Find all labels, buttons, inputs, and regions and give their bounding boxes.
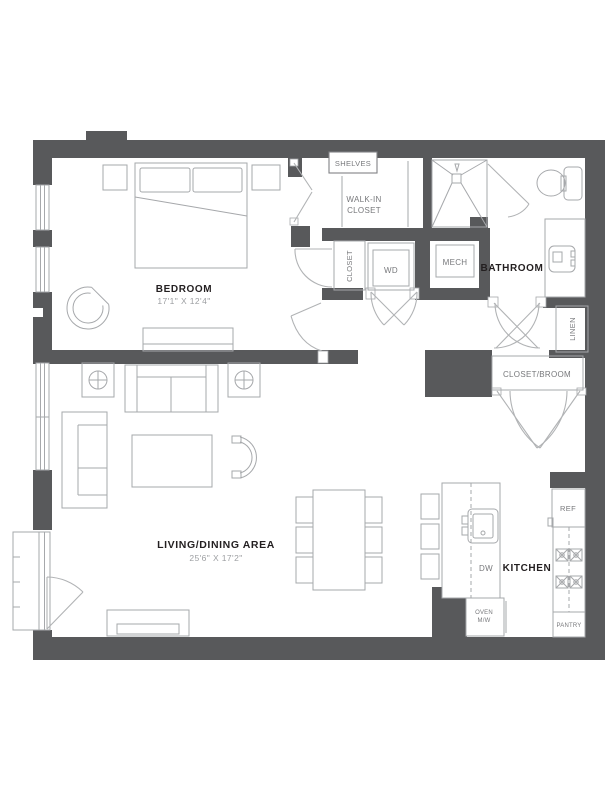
dining-table-set bbox=[296, 490, 382, 590]
bedroom-label: BEDROOM bbox=[156, 284, 212, 295]
dining-chair bbox=[365, 497, 382, 523]
left-wall-segment bbox=[33, 470, 52, 530]
right-wall bbox=[585, 140, 605, 660]
dining-chair bbox=[365, 557, 382, 583]
loveseat bbox=[62, 412, 107, 508]
oven-microwave-unit bbox=[466, 598, 506, 636]
left-wall-segment bbox=[33, 230, 52, 247]
bathroom-double-doors bbox=[494, 303, 540, 348]
oven-mw-label-line1: OVEN bbox=[475, 610, 493, 616]
accent-chair bbox=[232, 436, 256, 478]
shower-corner-wall bbox=[470, 217, 488, 240]
top-wall-pilaster bbox=[86, 131, 127, 141]
windows bbox=[13, 185, 50, 630]
window bbox=[36, 185, 49, 230]
bathroom-label: BATHROOM bbox=[481, 263, 544, 274]
dresser bbox=[143, 328, 233, 351]
shower-door bbox=[488, 164, 529, 217]
linen-label: LINEN bbox=[568, 317, 577, 341]
left-wall-notch bbox=[33, 308, 43, 317]
linen-bottom-wall bbox=[549, 350, 588, 358]
burner bbox=[556, 549, 568, 561]
dining-chair bbox=[296, 527, 313, 553]
hall-closet-wall bbox=[425, 350, 492, 397]
walkin-closet-label-line2: CLOSET bbox=[347, 206, 381, 215]
living-furniture bbox=[62, 363, 382, 636]
mech-label: MECH bbox=[443, 258, 468, 267]
kitchen-top-stub-wall bbox=[550, 472, 585, 488]
closet-broom-double-doors bbox=[497, 391, 580, 448]
walkin-shower-divider-wall bbox=[423, 158, 432, 228]
burner bbox=[570, 549, 582, 561]
shelves-label: SHELVES bbox=[335, 159, 371, 168]
dining-chair bbox=[296, 497, 313, 523]
sofa bbox=[125, 365, 218, 412]
bedroom-door bbox=[291, 303, 322, 351]
closet-broom-label: CLOSET/BROOM bbox=[503, 370, 571, 379]
window bbox=[36, 247, 49, 292]
kitchen-island bbox=[442, 483, 500, 598]
burner bbox=[570, 576, 582, 588]
closet-label: CLOSET bbox=[345, 250, 354, 282]
dining-chair bbox=[365, 527, 382, 553]
dining-chair bbox=[296, 557, 313, 583]
floorplan-page: BEDROOM 17'1" X 12'4" LIVING/DINING AREA… bbox=[0, 0, 612, 792]
closet-left-wall bbox=[291, 226, 310, 247]
range-counter bbox=[553, 527, 585, 612]
left-wall-segment bbox=[33, 630, 52, 640]
living-dining-dimensions: 25'6" X 17'2" bbox=[189, 553, 242, 563]
closet-row-top-wall bbox=[322, 228, 490, 241]
pantry-label: PANTRY bbox=[557, 623, 582, 629]
armchair bbox=[67, 287, 109, 329]
side-table bbox=[82, 363, 114, 397]
toilet bbox=[537, 167, 582, 200]
left-wall-segment bbox=[33, 292, 52, 364]
left-wall-segment bbox=[33, 140, 52, 185]
dishwasher-label: DW bbox=[479, 564, 493, 573]
stool bbox=[421, 494, 439, 519]
living-dining-label: LIVING/DINING AREA bbox=[157, 539, 275, 551]
dining-table bbox=[313, 490, 365, 590]
stool bbox=[421, 524, 439, 549]
bedroom-living-wall bbox=[52, 350, 358, 364]
shower bbox=[432, 160, 487, 227]
oven-mw-label-line2: M/W bbox=[478, 618, 491, 624]
bedroom-dimensions: 17'1" X 12'4" bbox=[157, 296, 210, 306]
bottom-wall bbox=[33, 637, 605, 660]
burner bbox=[556, 576, 568, 588]
floorplan-drawing: BEDROOM 17'1" X 12'4" LIVING/DINING AREA… bbox=[0, 0, 612, 792]
stool bbox=[421, 554, 439, 579]
media-console bbox=[107, 610, 189, 636]
coffee-table bbox=[132, 435, 212, 487]
nightstand bbox=[103, 165, 127, 190]
side-table bbox=[228, 363, 260, 397]
walkin-closet-label-line1: WALK-IN bbox=[346, 195, 381, 204]
bay-window bbox=[13, 532, 50, 630]
top-wall bbox=[33, 140, 585, 158]
nightstand bbox=[252, 165, 280, 190]
balcony-door bbox=[47, 577, 83, 629]
refrigerator-label: REF bbox=[560, 504, 576, 513]
closet-door bbox=[295, 249, 332, 287]
wd-label: WD bbox=[384, 266, 398, 275]
kitchen-label: KITCHEN bbox=[503, 563, 552, 574]
vanity-sink bbox=[545, 219, 585, 297]
bedroom-furniture bbox=[67, 163, 280, 351]
window bbox=[36, 363, 49, 470]
bed bbox=[135, 163, 247, 268]
